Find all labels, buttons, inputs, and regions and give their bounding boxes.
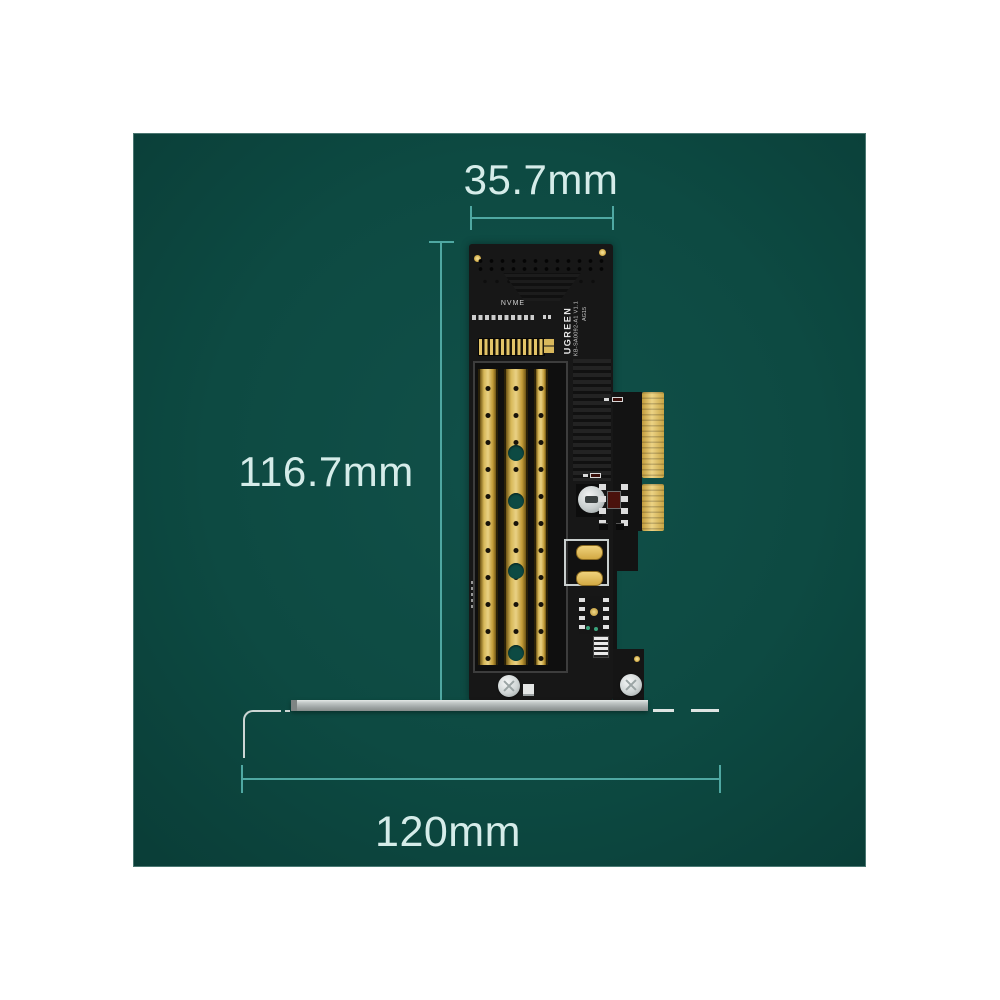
gold-pad-oval (576, 571, 603, 586)
pcie-gold-fingers-long (642, 392, 664, 478)
standoff-rail-right (534, 369, 548, 665)
standoff-rail-middle (504, 369, 528, 665)
standoff-hole-2280 (508, 645, 524, 661)
bracket-outline-dash (691, 709, 719, 712)
bracket-screw-right (620, 674, 642, 696)
led-dot (586, 626, 590, 630)
standoff-hole-2230 (508, 445, 524, 461)
pcb-rib-texture (573, 359, 611, 481)
pcb-step-block (613, 529, 638, 571)
bracket-outline-dash (653, 709, 674, 712)
pcb-edge-sliver (613, 571, 617, 649)
m2-socket (478, 338, 545, 356)
solder-pad-column (621, 484, 628, 528)
chevron-texture (498, 273, 586, 301)
bracket-outline-dash (285, 710, 290, 712)
mount-hole-top-right (599, 249, 606, 256)
nvme-label: NVME (496, 300, 530, 307)
edge-silkscreen-text (471, 581, 473, 611)
via-holes-row (475, 257, 607, 274)
solder-pad-column (599, 484, 606, 528)
bracket-outline-dash (272, 710, 281, 712)
bracket-dimension-tick-left (241, 765, 243, 793)
height-dimension-line (440, 241, 442, 700)
smd-fuse (523, 684, 534, 696)
capacitor-footprint-box (564, 539, 609, 586)
bracket-dimension-tick-right (719, 765, 721, 793)
ic-die (590, 608, 598, 616)
height-dimension-label: 116.7mm (176, 448, 476, 496)
gold-test-point (634, 656, 640, 662)
header-connector (593, 636, 609, 658)
silkscreen-mark (604, 398, 609, 401)
width-dimension-line (471, 217, 614, 219)
led-dot (594, 627, 598, 631)
standoff-rail-left (478, 369, 498, 665)
product-dimension-image: 35.7mm 116.7mm 120mm NVME UGREEN KB-SA00… (0, 0, 1000, 1000)
pcie-gold-fingers-short (642, 484, 664, 531)
width-dimension-tick-right (612, 206, 614, 230)
m2-socket-pads (544, 339, 554, 353)
diagram-stage: 35.7mm 116.7mm 120mm NVME UGREEN KB-SA00… (133, 133, 866, 867)
smd-component (599, 523, 608, 530)
smd-component (616, 523, 624, 530)
gold-pad-oval (576, 545, 603, 560)
bracket-bar (291, 700, 648, 711)
batch-label: AG15 (582, 289, 590, 339)
bracket-length-label: 120mm (298, 808, 598, 857)
m2-silkscreen-marks (543, 315, 553, 319)
width-dimension-tick-left (470, 206, 472, 230)
silkscreen-mark (590, 473, 601, 478)
controller-ic (579, 596, 609, 634)
silkscreen-mark (583, 474, 588, 477)
bracket-screw-left (498, 675, 520, 697)
smd-component (607, 491, 621, 509)
width-dimension-label: 35.7mm (391, 156, 691, 204)
silkscreen-mark (612, 397, 623, 402)
bracket-dimension-line (242, 778, 721, 780)
standoff-hole-2242 (508, 493, 524, 509)
standoff-hole-2260 (508, 563, 524, 579)
bracket-flange-outline (243, 710, 273, 758)
m2-solder-strip (472, 315, 534, 320)
